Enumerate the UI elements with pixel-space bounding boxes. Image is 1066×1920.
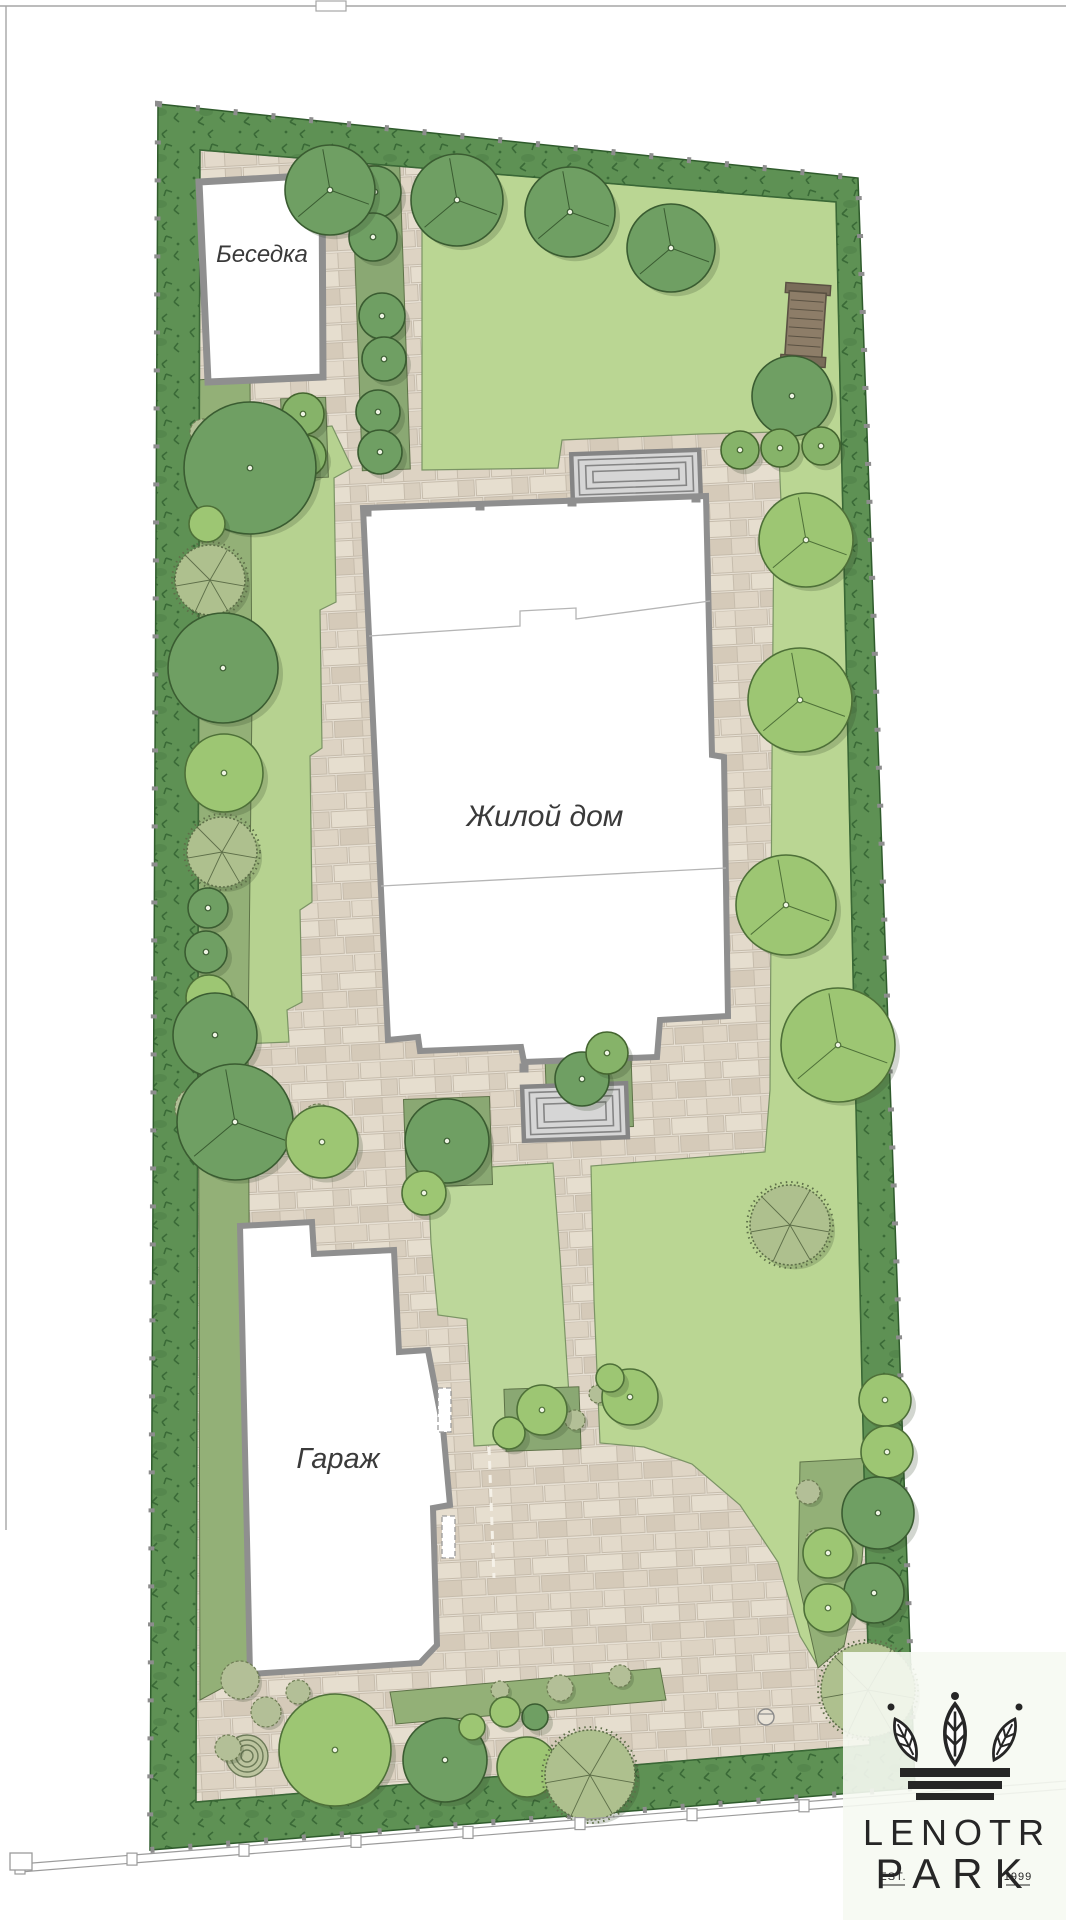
logo-est-label: EST. bbox=[879, 1871, 906, 1883]
shrub bbox=[286, 1680, 310, 1704]
fence-end-post bbox=[10, 1853, 32, 1870]
tree-trunk-dot bbox=[377, 449, 383, 455]
shrub bbox=[547, 1675, 573, 1701]
utility-marker bbox=[758, 1709, 774, 1725]
tree-trunk-dot bbox=[797, 697, 803, 703]
shrub bbox=[609, 1665, 631, 1687]
tree-trunk-dot bbox=[783, 902, 789, 908]
fence-post bbox=[127, 1853, 137, 1865]
tree-trunk-dot bbox=[567, 209, 573, 215]
tree-trunk-dot bbox=[884, 1449, 890, 1455]
logo-name-line1: LENOTR bbox=[863, 1812, 1051, 1853]
gazebo-label: Беседка bbox=[216, 241, 308, 268]
tree-light bbox=[189, 506, 225, 542]
sheet-tab bbox=[316, 1, 346, 11]
house-building bbox=[363, 496, 728, 1062]
company-logo: LENOTR PARK EST. 1999 bbox=[843, 1652, 1066, 1920]
garage-door-dashed bbox=[442, 1516, 455, 1558]
tree-trunk-dot bbox=[835, 1042, 841, 1048]
tree-trunk-dot bbox=[221, 770, 227, 776]
tree-trunk-dot bbox=[212, 1032, 218, 1038]
tree-trunk-dot bbox=[668, 245, 674, 251]
tree-trunk-dot bbox=[737, 447, 743, 453]
tree-trunk-dot bbox=[370, 234, 376, 240]
wall-pillar bbox=[476, 502, 485, 511]
tree-light bbox=[596, 1364, 624, 1392]
tree-trunk-dot bbox=[825, 1605, 831, 1611]
tree-trunk-dot bbox=[818, 443, 824, 449]
fence-post bbox=[575, 1818, 585, 1830]
tree-trunk-dot bbox=[454, 197, 460, 203]
logo-year: 1999 bbox=[1004, 1871, 1032, 1883]
tree-trunk-dot bbox=[871, 1590, 877, 1596]
wall-pillar bbox=[520, 1064, 529, 1073]
tree-trunk-dot bbox=[375, 409, 381, 415]
tree-trunk-dot bbox=[381, 356, 387, 362]
tree-trunk-dot bbox=[232, 1119, 238, 1125]
tree-trunk-dot bbox=[539, 1407, 545, 1413]
tree-light bbox=[459, 1714, 485, 1740]
tree-dark bbox=[522, 1704, 548, 1730]
house-label: Жилой дом bbox=[465, 800, 624, 833]
tree-trunk-dot bbox=[444, 1138, 450, 1144]
tree-trunk-dot bbox=[789, 393, 795, 399]
wall-pillar bbox=[692, 494, 701, 503]
fence-post bbox=[463, 1826, 473, 1838]
tree-trunk-dot bbox=[327, 187, 333, 193]
tree-trunk-dot bbox=[203, 949, 209, 955]
shrub bbox=[796, 1480, 820, 1504]
fence-post bbox=[687, 1809, 697, 1821]
tree-trunk-dot bbox=[777, 445, 783, 451]
tree-trunk-dot bbox=[205, 905, 211, 911]
tree-trunk-dot bbox=[379, 313, 385, 319]
tree-trunk-dot bbox=[604, 1050, 610, 1056]
shrub bbox=[215, 1735, 241, 1761]
tree-trunk-dot bbox=[875, 1510, 881, 1516]
tree-trunk-dot bbox=[220, 665, 226, 671]
garage-door-dashed bbox=[438, 1388, 451, 1432]
fence-post bbox=[799, 1800, 809, 1812]
tree-trunk-dot bbox=[332, 1747, 338, 1753]
tree-trunk-dot bbox=[579, 1076, 585, 1082]
landscape-plan-page: Беседка Жилой дом Гараж LENOTR PARK EST.… bbox=[0, 0, 1066, 1920]
garage-label: Гараж bbox=[296, 1443, 380, 1475]
tree-trunk-dot bbox=[300, 411, 306, 417]
entrance-steps bbox=[571, 450, 701, 501]
wall-pillar bbox=[363, 508, 372, 517]
tree-light bbox=[493, 1417, 525, 1449]
tree-trunk-dot bbox=[803, 537, 809, 543]
tree-trunk-dot bbox=[627, 1394, 633, 1400]
tree-trunk-dot bbox=[319, 1139, 325, 1145]
tree-trunk-dot bbox=[421, 1190, 427, 1196]
tree-trunk-dot bbox=[825, 1550, 831, 1556]
landscape-plan-canvas: Беседка Жилой дом Гараж LENOTR PARK EST.… bbox=[0, 0, 1066, 1920]
shrub bbox=[221, 1661, 259, 1699]
tree-light bbox=[490, 1697, 520, 1727]
tree-trunk-dot bbox=[442, 1757, 448, 1763]
tree-trunk-dot bbox=[247, 465, 253, 471]
shrub bbox=[251, 1697, 281, 1727]
wall-pillar bbox=[568, 498, 577, 507]
tree-trunk-dot bbox=[882, 1397, 888, 1403]
fence-post bbox=[351, 1835, 361, 1847]
fence-post bbox=[239, 1844, 249, 1856]
